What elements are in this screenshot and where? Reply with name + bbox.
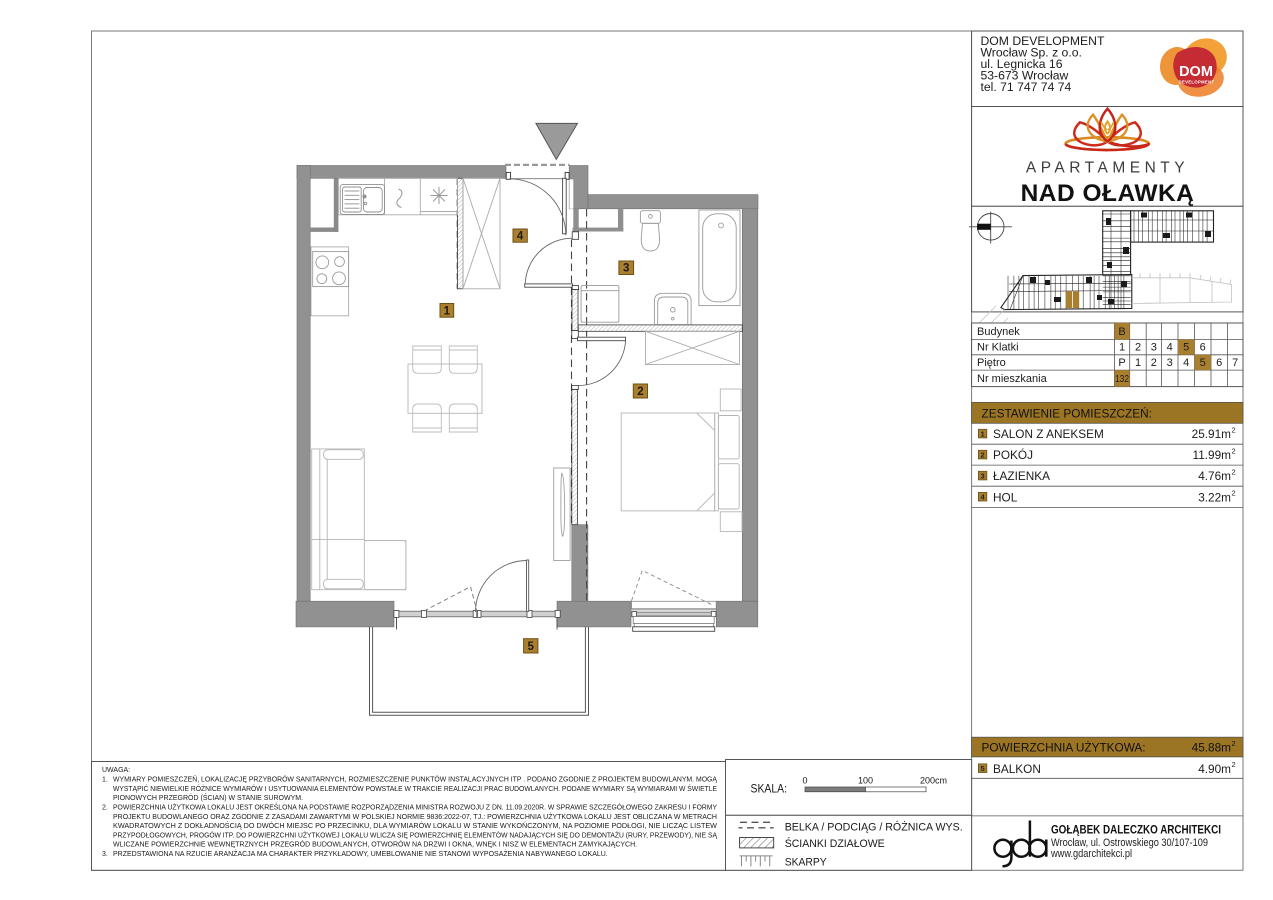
svg-text:2: 2 — [981, 450, 985, 459]
svg-text:5: 5 — [1200, 357, 1206, 369]
svg-text:PRZYPODŁOGOWYCH, PROGÓW ITP. D: PRZYPODŁOGOWYCH, PROGÓW ITP. DO POWIERZC… — [113, 830, 717, 839]
svg-text:6: 6 — [1200, 342, 1206, 354]
svg-text:3: 3 — [623, 263, 629, 275]
svg-text:ŚCIANKI DZIAŁOWE: ŚCIANKI DZIAŁOWE — [785, 837, 885, 850]
svg-text:2: 2 — [1151, 357, 1157, 369]
svg-text:3: 3 — [981, 471, 985, 480]
svg-text:ŁAZIENKA: ŁAZIENKA — [993, 469, 1050, 483]
svg-text:2: 2 — [1232, 447, 1236, 456]
svg-text:2: 2 — [1232, 489, 1236, 498]
svg-text:3.: 3. — [102, 851, 108, 858]
svg-text:WYSTĄPIĆ NIEWIELKIE RÓŻNICE WY: WYSTĄPIĆ NIEWIELKIE RÓŻNICE WYMIARÓW I U… — [113, 784, 717, 793]
svg-text:2.: 2. — [102, 805, 108, 812]
svg-text:Nr mieszkania: Nr mieszkania — [977, 373, 1048, 385]
svg-text:Piętro: Piętro — [977, 357, 1006, 369]
svg-text:Nr Klatki: Nr Klatki — [977, 342, 1019, 354]
svg-text:WLICZANE POWIERZCHNIE WEWNĘTRZ: WLICZANE POWIERZCHNIE WEWNĘTRZNYCH PRZEG… — [113, 840, 637, 849]
svg-text:5: 5 — [1183, 342, 1189, 354]
svg-text:GOŁĄBEK DALECZKO ARCHITEKCI: GOŁĄBEK DALECZKO ARCHITEKCI — [1051, 824, 1221, 837]
svg-text:HOL: HOL — [993, 490, 1018, 504]
svg-text:0: 0 — [802, 776, 807, 786]
svg-text:1.: 1. — [102, 777, 108, 784]
svg-text:SKALA:: SKALA: — [751, 782, 788, 796]
svg-text:PRZEDSTAWIONA NA RZUCIE ARANŻA: PRZEDSTAWIONA NA RZUCIE ARANŻACJA MA CHA… — [113, 849, 608, 858]
svg-text:3: 3 — [1167, 357, 1173, 369]
svg-text:PROJEKTU BUDOWLANEGO ORAZ Z: PROJEKTU BUDOWLANEGO ORAZ ZGODNIE Z ZASA… — [113, 812, 717, 821]
svg-text:100: 100 — [858, 776, 873, 786]
svg-text:5: 5 — [981, 764, 985, 773]
svg-text:2: 2 — [1232, 760, 1236, 769]
svg-text:2: 2 — [1232, 426, 1236, 435]
svg-text:1: 1 — [1135, 357, 1141, 369]
svg-text:SALON Z ANEKSEM: SALON Z ANEKSEM — [993, 427, 1104, 441]
svg-text:5: 5 — [527, 641, 534, 653]
svg-text:KWADRATOWYCH Z DOKŁADNOŚCIĄ: KWADRATOWYCH Z DOKŁADNOŚCIĄ DO DWÓCH MIE… — [113, 821, 717, 830]
svg-text:2: 2 — [1232, 739, 1236, 748]
svg-text:7: 7 — [1232, 357, 1238, 369]
svg-text:ZESTAWIENIE POMIESZCZEŃ:: ZESTAWIENIE POMIESZCZEŃ: — [982, 407, 1152, 421]
svg-text:4: 4 — [517, 230, 524, 242]
svg-text:2: 2 — [637, 386, 643, 398]
svg-text:www.gdarchitekci.pl: www.gdarchitekci.pl — [1050, 848, 1132, 860]
svg-text:DEVELOPMENT: DEVELOPMENT — [1179, 80, 1215, 85]
svg-text:3: 3 — [1151, 342, 1157, 354]
svg-text:Budynek: Budynek — [977, 326, 1020, 338]
svg-text:POWIERZCHNIA UŻYTKOWA LOKALU J: POWIERZCHNIA UŻYTKOWA LOKALU JEST OKREŚL… — [113, 803, 717, 812]
svg-text:25.91m: 25.91m — [1192, 427, 1232, 441]
svg-text:200cm: 200cm — [920, 776, 947, 786]
svg-text:4: 4 — [1183, 357, 1189, 369]
svg-text:2: 2 — [1232, 468, 1236, 477]
svg-text:45.88m: 45.88m — [1192, 741, 1232, 755]
svg-text:PIONOWYCH PRZEGRÓD (ŚCIAN) W S: PIONOWYCH PRZEGRÓD (ŚCIAN) W STANIE SURO… — [113, 793, 303, 802]
svg-text:WYMIARY POMIESZCZEŃ, LOKALIZ: WYMIARY POMIESZCZEŃ, LOKALIZACJĘ PRZYBOR… — [113, 775, 717, 784]
svg-text:1: 1 — [981, 429, 985, 438]
svg-text:4.76m: 4.76m — [1198, 469, 1231, 483]
svg-text:P: P — [1118, 357, 1125, 369]
svg-text:1: 1 — [444, 305, 451, 317]
svg-text:132: 132 — [1115, 373, 1129, 385]
svg-text:6: 6 — [1216, 357, 1222, 369]
svg-text:4: 4 — [1167, 342, 1173, 354]
svg-text:3.22m: 3.22m — [1198, 490, 1231, 504]
svg-text:1: 1 — [1119, 342, 1125, 354]
svg-text:B: B — [1118, 326, 1125, 338]
svg-text:DOM: DOM — [1179, 64, 1213, 80]
svg-text:POWIERZCHNIA UŻYTKOWA:: POWIERZCHNIA UŻYTKOWA: — [982, 741, 1146, 755]
svg-text:4.90m: 4.90m — [1198, 762, 1231, 776]
svg-text:UWAGA:: UWAGA: — [102, 767, 130, 774]
svg-text:11.99m: 11.99m — [1193, 448, 1232, 462]
svg-text:BELKA / PODCIĄG / RÓŻNICA WYS.: BELKA / PODCIĄG / RÓŻNICA WYS. — [785, 821, 963, 834]
svg-text:tel. 71 747 74 74: tel. 71 747 74 74 — [981, 80, 1072, 94]
svg-text:POKÓJ: POKÓJ — [993, 448, 1033, 462]
svg-text:NAD OŁAWKĄ: NAD OŁAWKĄ — [1021, 180, 1195, 207]
svg-text:SKARPY: SKARPY — [785, 857, 827, 869]
svg-text:BALKON: BALKON — [993, 762, 1041, 776]
svg-text:APARTAMENTY: APARTAMENTY — [1026, 160, 1189, 177]
svg-text:2: 2 — [1135, 342, 1141, 354]
